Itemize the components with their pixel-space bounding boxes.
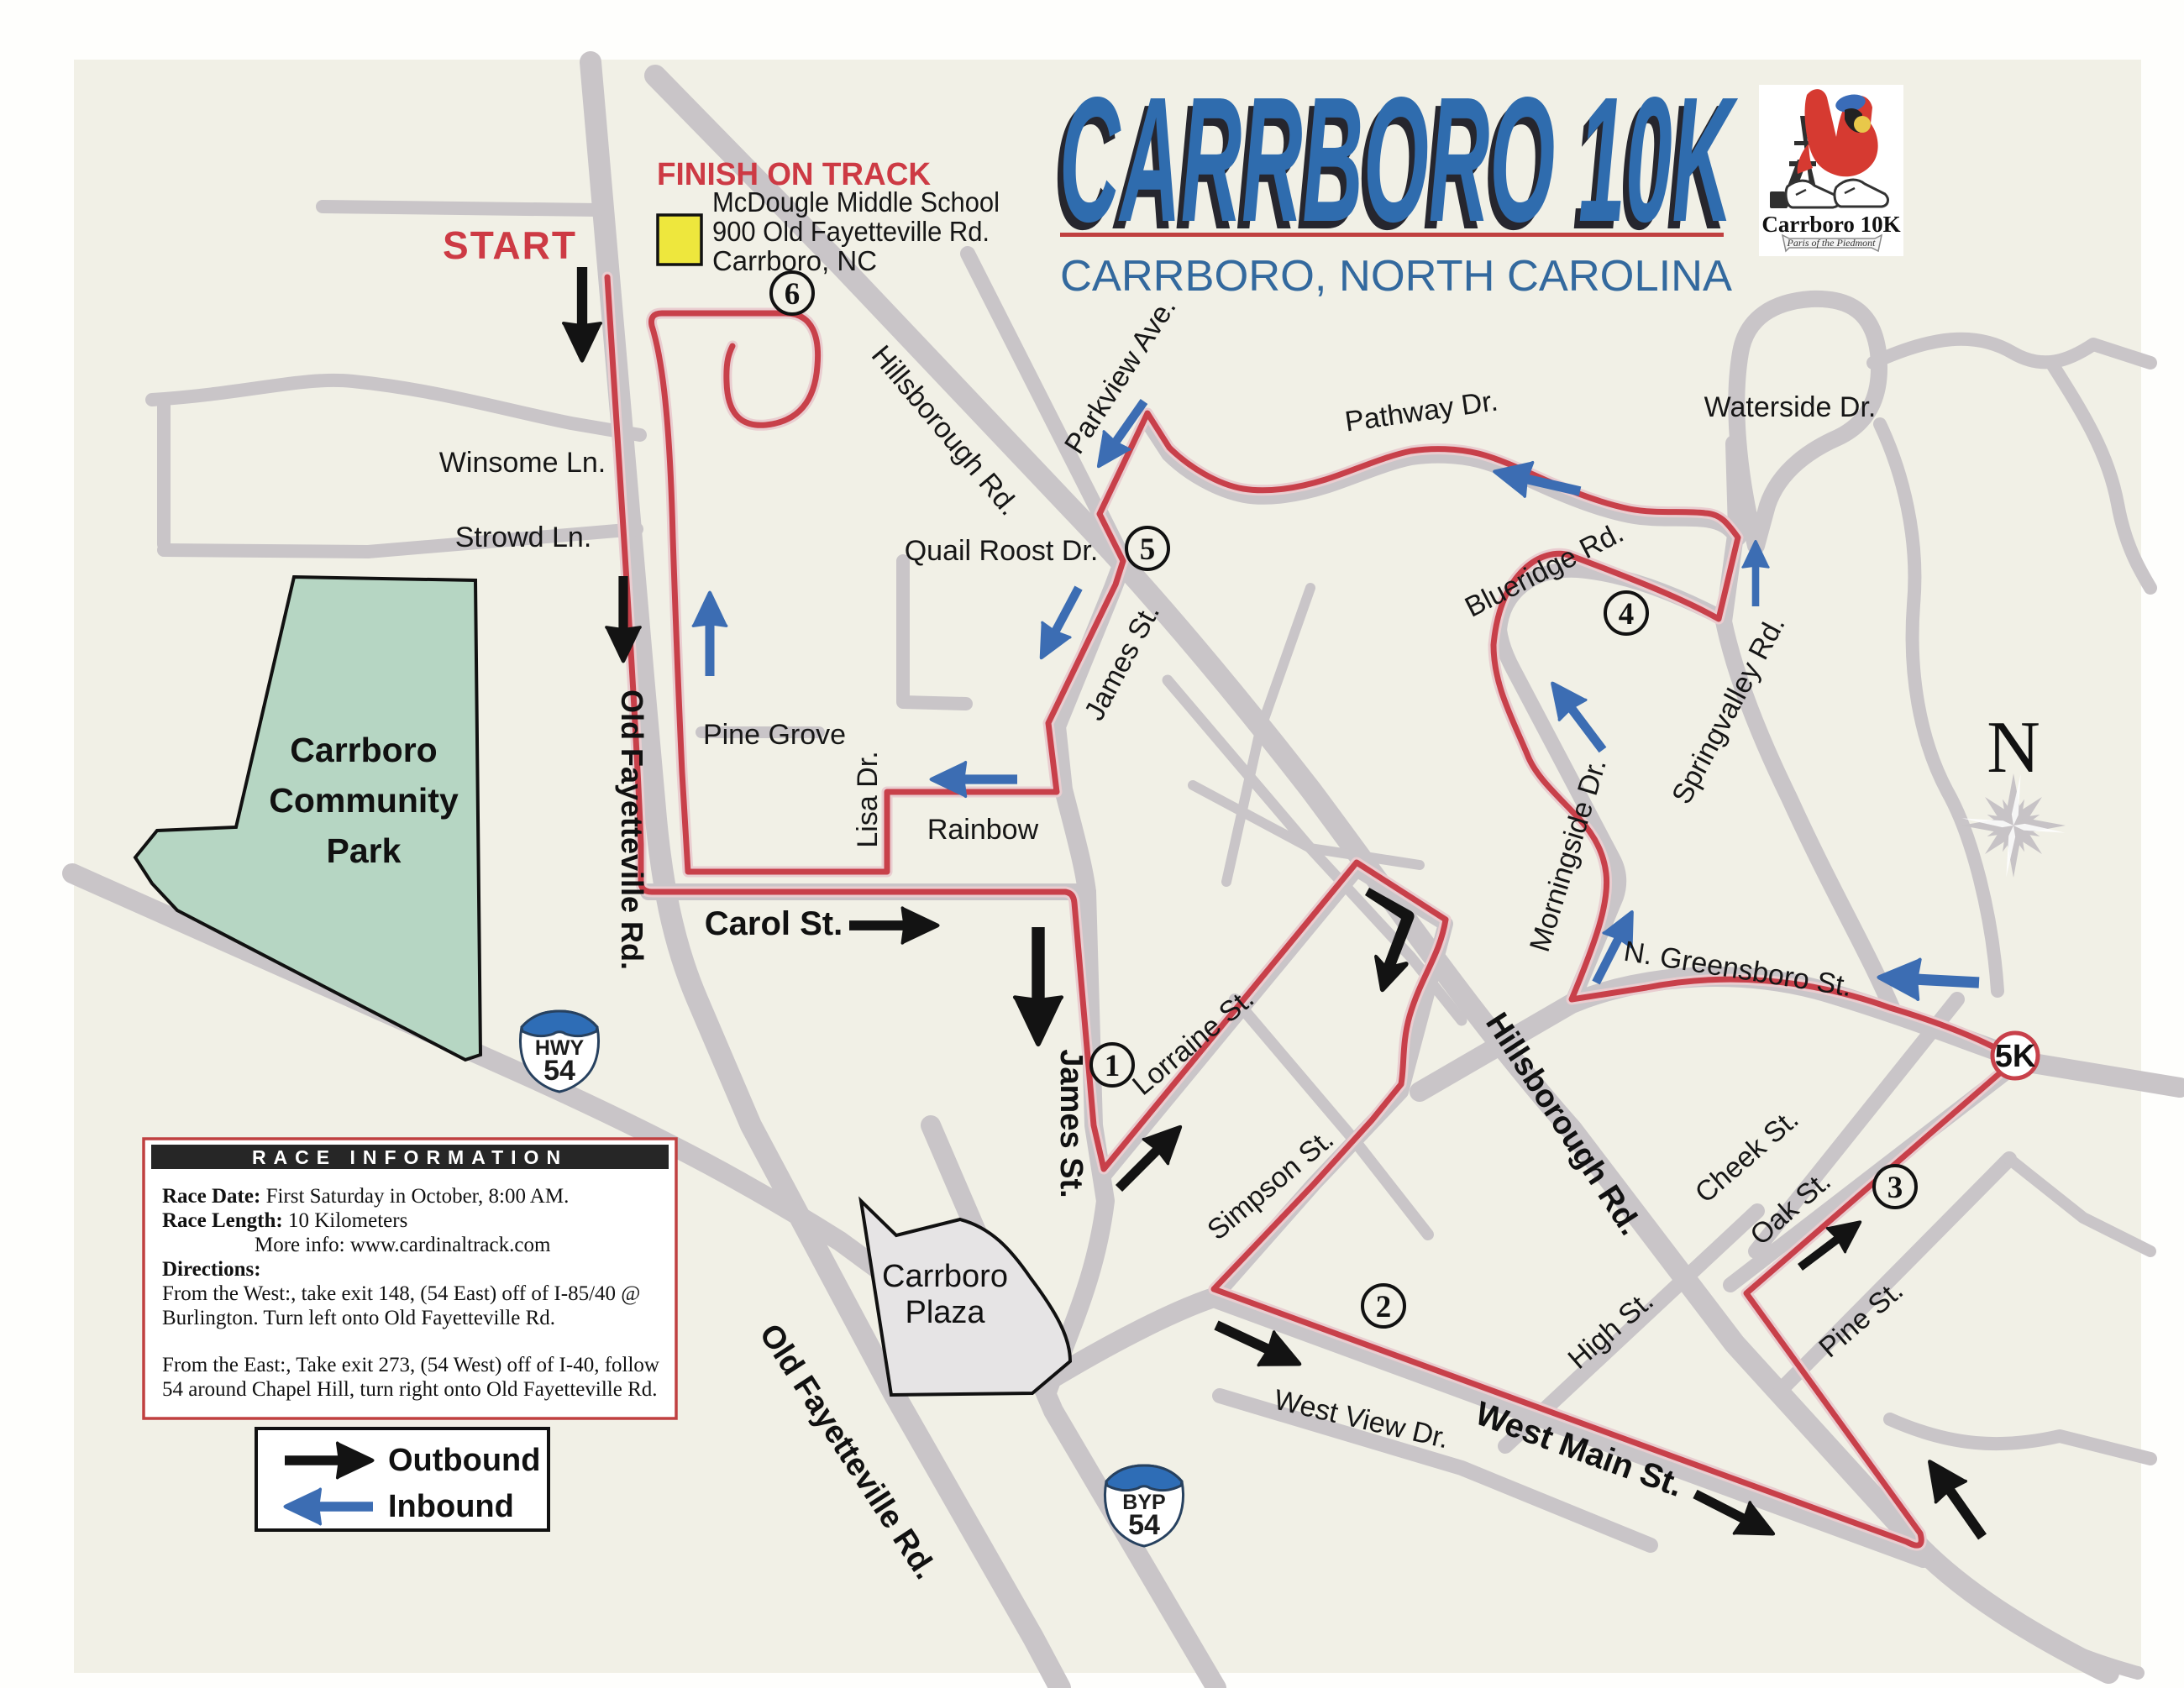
svg-text:5: 5: [1140, 532, 1156, 567]
svg-text:Carrboro: Carrboro: [290, 731, 437, 769]
svg-text:RACE INFORMATION: RACE INFORMATION: [252, 1146, 568, 1168]
svg-text:From the West:, take exit 148,: From the West:, take exit 148, (54 East)…: [162, 1282, 640, 1305]
svg-text:Carol St.: Carol St.: [705, 905, 843, 942]
svg-text:Waterside Dr.: Waterside Dr.: [1704, 391, 1877, 423]
svg-text:Pine Grove: Pine Grove: [703, 719, 846, 751]
svg-text:From the East:, Take exit 273,: From the East:, Take exit 273, (54 West)…: [162, 1354, 659, 1376]
svg-text:Carrboro 10K: Carrboro 10K: [1761, 212, 1900, 237]
svg-text:Park: Park: [327, 831, 402, 870]
svg-text:Old Fayetteville Rd.: Old Fayetteville Rd.: [615, 689, 649, 970]
svg-text:4: 4: [1619, 597, 1635, 632]
svg-text:54: 54: [543, 1055, 575, 1087]
svg-text:Plaza: Plaza: [905, 1295, 985, 1330]
svg-text:Inbound: Inbound: [388, 1489, 514, 1524]
svg-text:Burlington. Turn left onto Old: Burlington. Turn left onto Old Fayettevi…: [162, 1307, 555, 1329]
svg-text:Outbound: Outbound: [388, 1443, 540, 1478]
svg-text:CARRBORO, NORTH CAROLINA: CARRBORO, NORTH CAROLINA: [1060, 252, 1732, 301]
svg-text:McDougle Middle School: McDougle Middle School: [712, 186, 1000, 218]
svg-text:54 around Chapel Hill, turn ri: 54 around Chapel Hill, turn right onto O…: [162, 1378, 658, 1401]
svg-text:54: 54: [1128, 1509, 1160, 1541]
svg-text:Lisa Dr.: Lisa Dr.: [852, 751, 884, 847]
svg-text:3: 3: [1887, 1171, 1903, 1205]
svg-text:Winsome Ln.: Winsome Ln.: [439, 447, 606, 479]
svg-text:Race Date: First Saturday in O: Race Date: First Saturday in October, 8:…: [162, 1185, 569, 1208]
svg-text:5K: 5K: [1995, 1039, 2036, 1074]
svg-text:Race Length: 10 Kilometers: Race Length: 10 Kilometers: [162, 1209, 407, 1232]
svg-text:CARRBORO 10K: CARRBORO 10K: [1059, 60, 1738, 259]
svg-text:900 Old Fayetteville Rd.: 900 Old Fayetteville Rd.: [712, 216, 990, 247]
svg-text:START: START: [443, 223, 577, 267]
svg-text:Directions:: Directions:: [162, 1258, 261, 1281]
svg-text:Rainbow: Rainbow: [927, 814, 1039, 846]
svg-text:2: 2: [1376, 1290, 1392, 1324]
svg-text:James St.: James St.: [1053, 1049, 1089, 1198]
svg-text:6: 6: [785, 277, 801, 312]
svg-text:Carrboro: Carrboro: [882, 1259, 1008, 1294]
svg-text:Paris of the Piedmont: Paris of the Piedmont: [1787, 237, 1877, 249]
svg-text:More info: www.cardinaltrack.c: More info: www.cardinaltrack.com: [255, 1234, 551, 1256]
svg-text:Community: Community: [269, 781, 459, 820]
svg-text:Strowd Ln.: Strowd Ln.: [455, 522, 592, 553]
svg-text:1: 1: [1105, 1049, 1121, 1083]
svg-text:Quail Roost Dr.: Quail Roost Dr.: [905, 535, 1099, 567]
